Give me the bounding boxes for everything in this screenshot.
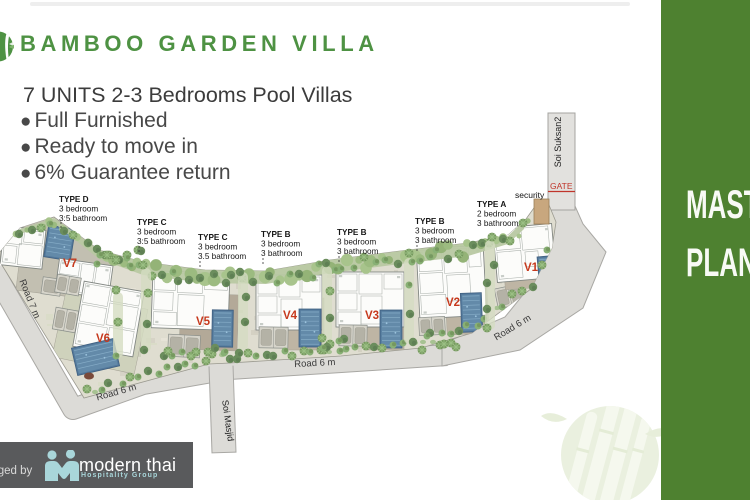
svg-text:3:5 bathroom: 3:5 bathroom — [59, 214, 107, 223]
svg-text:TYPE A: TYPE A — [477, 200, 506, 209]
svg-text:3:5 bathroom: 3:5 bathroom — [137, 237, 185, 246]
svg-text:3 bathroom: 3 bathroom — [415, 236, 457, 245]
svg-text:security: security — [515, 190, 545, 200]
svg-text:GATE: GATE — [550, 181, 573, 191]
svg-text:V7: V7 — [63, 258, 77, 270]
svg-text:TYPE B: TYPE B — [261, 230, 291, 239]
svg-text:V2: V2 — [446, 297, 460, 309]
svg-text:TYPE C: TYPE C — [198, 233, 228, 242]
svg-text:3 bedroom: 3 bedroom — [337, 238, 376, 247]
svg-text:TYPE C: TYPE C — [137, 218, 167, 227]
svg-text:3 bedroom: 3 bedroom — [261, 240, 300, 249]
svg-text:Road 6 m: Road 6 m — [294, 357, 336, 370]
svg-text:Soi Suksan2: Soi Suksan2 — [553, 117, 563, 168]
svg-text:TYPE D: TYPE D — [59, 195, 89, 204]
svg-text:V3: V3 — [365, 310, 379, 322]
svg-text:V5: V5 — [196, 316, 211, 328]
svg-text:V1: V1 — [524, 262, 539, 274]
svg-text:2 bedroom: 2 bedroom — [477, 210, 516, 219]
svg-text:3 bedroom: 3 bedroom — [198, 243, 237, 252]
svg-text:TYPE B: TYPE B — [337, 228, 367, 237]
svg-text:3 bathroom: 3 bathroom — [261, 249, 303, 258]
svg-text:V4: V4 — [283, 310, 298, 322]
svg-text:3 bedroom: 3 bedroom — [137, 228, 176, 237]
svg-text:3 bedroom: 3 bedroom — [59, 205, 98, 214]
svg-text:3 bedroom: 3 bedroom — [415, 227, 454, 236]
svg-text:3 bathroom: 3 bathroom — [337, 247, 379, 256]
svg-text:3 bathroom: 3 bathroom — [477, 219, 519, 228]
svg-text:3.5 bathroom: 3.5 bathroom — [198, 252, 246, 261]
svg-text:TYPE B: TYPE B — [415, 217, 445, 226]
svg-text:V6: V6 — [96, 333, 110, 345]
